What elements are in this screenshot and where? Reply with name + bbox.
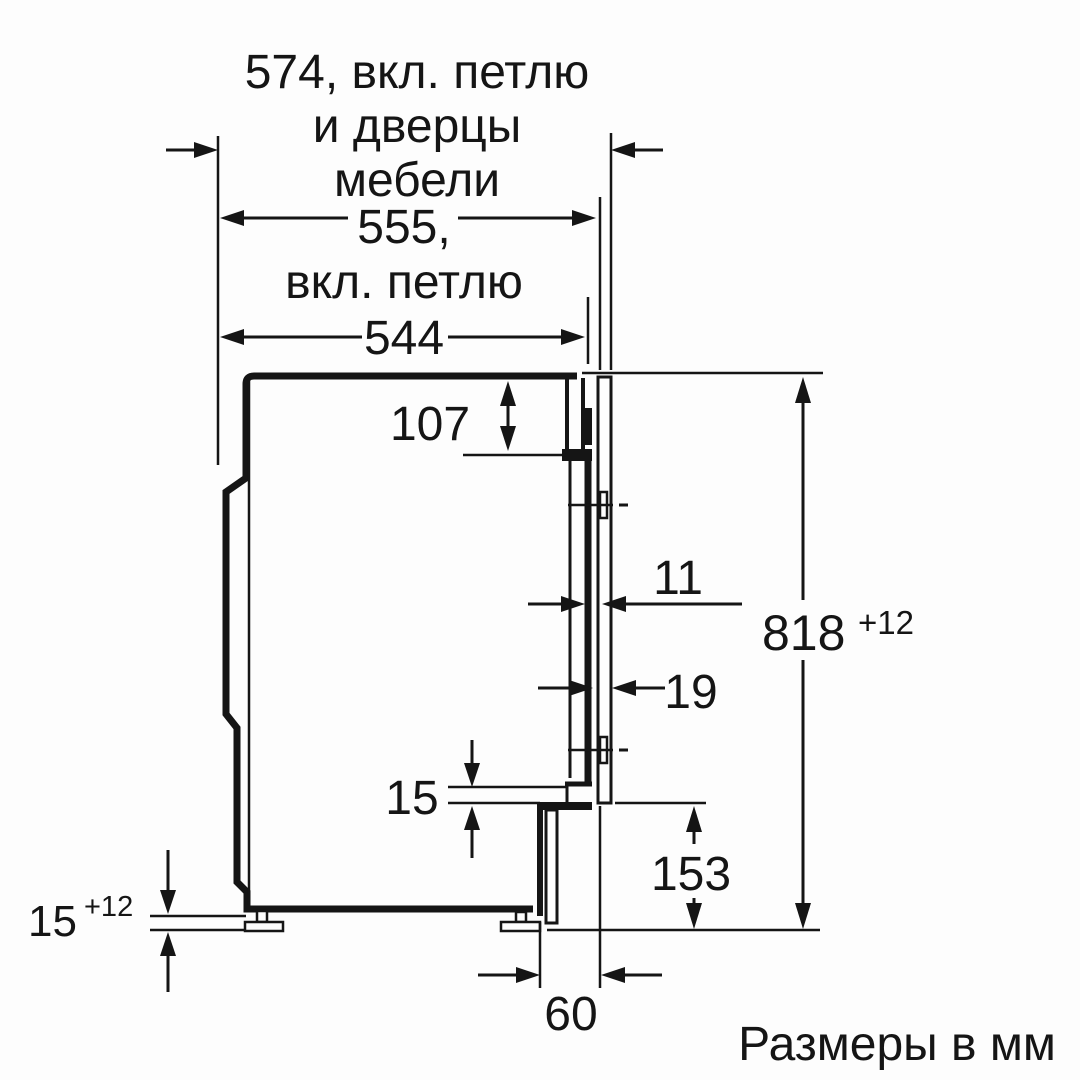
dim-15 xyxy=(464,740,480,858)
dim-15-12-tolerance: +12 xyxy=(84,891,133,923)
front-foot-stem xyxy=(516,912,526,922)
rear-foot-plate xyxy=(245,922,283,931)
dim-574-right-arrow xyxy=(611,142,635,158)
dim-15-12-label: 15 xyxy=(28,897,77,946)
dim-15-12-up-arrow xyxy=(160,932,176,956)
plinth-strip xyxy=(546,810,557,923)
door-hinge-boss xyxy=(583,408,592,445)
dim-574-label-line3: мебели xyxy=(334,154,500,207)
dim-153-label: 153 xyxy=(651,848,731,901)
rear-foot-stem xyxy=(257,911,267,922)
dim-15-12-down-arrow xyxy=(160,890,176,914)
dim-107-label: 107 xyxy=(390,398,470,451)
dim-15-down-arrow xyxy=(464,763,480,787)
appliance-feet xyxy=(245,911,540,931)
dim-60-label: 60 xyxy=(544,988,597,1041)
dim-555-label-line2: вкл. петлю xyxy=(285,256,523,309)
installation-diagram-page: 574, вкл. петлю и дверцы мебели 555, вкл… xyxy=(0,0,1080,1080)
dim-544-right-arrow xyxy=(561,329,585,345)
dim-555-label-line1: 555, xyxy=(357,201,450,254)
dim-818-tolerance: +12 xyxy=(858,604,914,641)
dim-11-label: 11 xyxy=(653,552,703,605)
dim-574-left-arrow xyxy=(194,142,218,158)
dim-555-left-arrow xyxy=(220,210,244,226)
units-caption: Размеры в мм xyxy=(738,1018,1056,1071)
front-foot-plate xyxy=(501,922,540,931)
dim-818-up-arrow xyxy=(795,377,811,403)
dim-574-label-line1: 574, вкл. петлю xyxy=(245,46,590,99)
dim-107-down-arrow xyxy=(500,426,516,451)
dim-818-down-arrow xyxy=(795,903,811,929)
dim-19-label: 19 xyxy=(664,666,717,719)
dim-107 xyxy=(500,381,516,451)
dim-15-label: 15 xyxy=(385,772,438,825)
dim-60-right-arrow xyxy=(601,967,625,983)
dim-818-label: 818 xyxy=(762,605,845,661)
appliance-front-assembly xyxy=(537,378,592,923)
dim-107-up-arrow xyxy=(500,381,516,406)
dim-60 xyxy=(478,967,662,983)
dim-11 xyxy=(528,596,742,612)
diagram-canvas: 574, вкл. петлю и дверцы мебели 555, вкл… xyxy=(0,0,1080,1080)
dim-11-left-arrow xyxy=(561,596,585,612)
dim-19-right-arrow xyxy=(612,680,636,696)
dim-574-label-line2: и дверцы xyxy=(313,100,522,153)
dim-544-label: 544 xyxy=(364,312,444,365)
dim-153-up-arrow xyxy=(686,806,702,832)
dim-60-left-arrow xyxy=(516,967,540,983)
dim-153-down-arrow xyxy=(686,903,702,929)
dim-15-12 xyxy=(160,850,176,992)
dim-555-right-arrow xyxy=(572,210,596,226)
dim-544-left-arrow xyxy=(220,329,244,345)
dim-15-up-arrow xyxy=(464,806,480,830)
